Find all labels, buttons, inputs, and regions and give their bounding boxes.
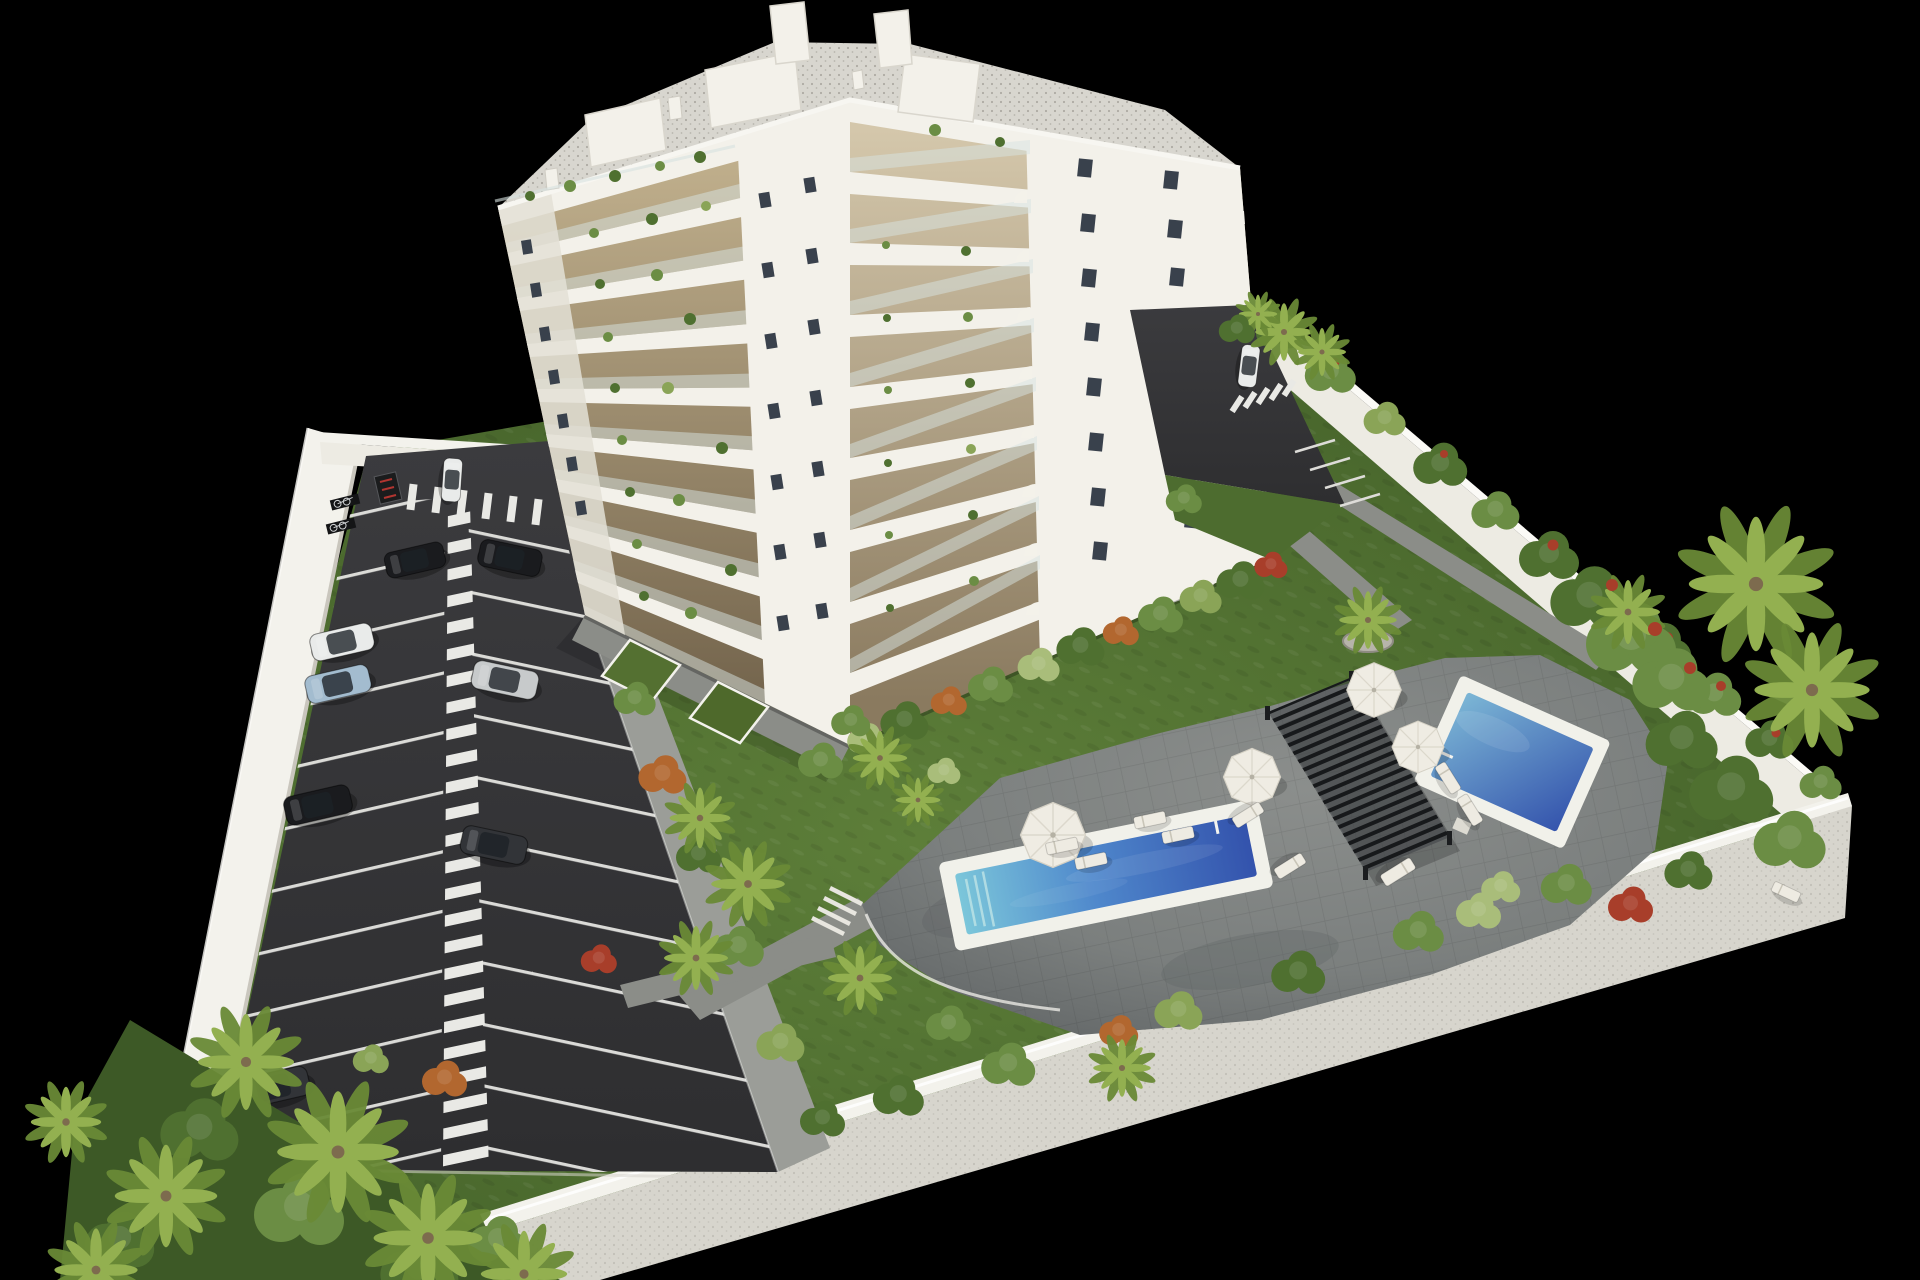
architectural-render	[0, 0, 1920, 1280]
render-canvas	[0, 0, 1920, 1280]
